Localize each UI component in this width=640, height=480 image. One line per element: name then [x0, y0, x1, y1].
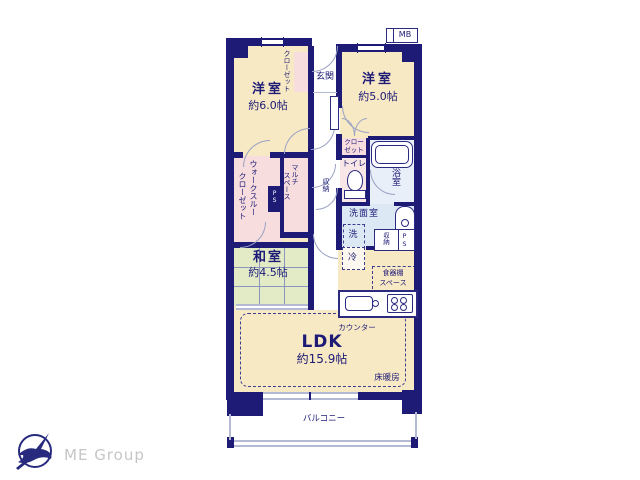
washer-label: 洗 [343, 230, 363, 240]
window-top-left-tick-b [283, 37, 284, 47]
wtc-label-line1: ウォークスルー [249, 160, 257, 216]
wall-left-outer [226, 38, 234, 398]
balcony-side-right [415, 412, 417, 439]
washbasin-faucet [401, 219, 409, 227]
entrance-step-line [313, 92, 337, 93]
japanese-size: 約4.5帖 [242, 267, 294, 280]
window-top-right [358, 46, 384, 50]
kitchen-sink-icon [345, 296, 373, 311]
logo-bird-icon [14, 424, 62, 472]
cupboard-label-line2: スペース [372, 279, 414, 287]
wall-corner-tl [226, 38, 248, 58]
kitchen-faucet-icon [372, 300, 379, 307]
wall-japanese-top [226, 242, 310, 248]
wall-western1-bottom-a [234, 152, 243, 158]
storage-wash-label: 収納 [382, 232, 389, 245]
fridge-label: 冷 [342, 253, 363, 263]
balcony-railing [228, 440, 418, 447]
window-top-left [262, 40, 283, 44]
ps-wash-label: PS [401, 232, 408, 248]
stove-icon [387, 294, 413, 313]
bathtub-inner [375, 145, 409, 164]
closet-top-floor [294, 52, 308, 92]
wall-multi-bottom [280, 232, 308, 238]
multi-label-line2: スペース [283, 172, 290, 200]
bathtub-icon [371, 141, 413, 168]
window-top-left-tick-a [261, 37, 262, 47]
pillar-bottom-right [402, 390, 422, 414]
japanese-sliding-door [236, 304, 308, 310]
floorplan-canvas: MB 玄関 洋室 約6.0帖 洋室 約5.0帖 クローゼット ウォークスルー ク… [0, 0, 640, 480]
balcony-label: バルコニー [296, 415, 352, 425]
logo: ME Group [14, 424, 144, 472]
shoe-cabinet [330, 96, 339, 130]
tatami-grid-h2 [234, 286, 310, 287]
wtc-label-line2: クローゼット [238, 172, 246, 220]
window-top-right-tick-a [357, 43, 358, 53]
storage-hall-label: 収納 [322, 178, 329, 192]
entrance-label: 玄関 [312, 72, 338, 82]
logo-text: ME Group [64, 446, 145, 464]
kitchen-counter [338, 290, 418, 318]
ldk-name: LDK [296, 333, 348, 353]
floor-heating-label: 床暖房 [370, 374, 404, 384]
toilet-label: トイレ [340, 159, 368, 168]
ps-small-label: PS [271, 190, 277, 204]
multi-label-line1: マルチ [291, 164, 298, 185]
balcony-side-left [229, 414, 231, 440]
wall-closet2-toilet [342, 155, 366, 158]
window-bottom-tick [309, 392, 311, 400]
western2-name: 洋室 [354, 73, 402, 88]
wall-western2-bottom-b [368, 136, 422, 140]
toilet-tank-icon [344, 190, 366, 199]
cupboard-label-line1: 食器棚 [374, 269, 412, 277]
pillar-bottom-left [227, 392, 263, 416]
bath-label: 浴室 [390, 168, 399, 186]
toilet-icon [347, 170, 363, 191]
western2-size: 約5.0帖 [350, 91, 406, 104]
wall-washroom-top-a [336, 202, 370, 206]
window-top-right-tick-b [385, 43, 386, 53]
western1-size: 約6.0帖 [240, 100, 296, 113]
mb-label: MB [394, 30, 416, 39]
closet2-label-line2: ゼット [341, 147, 367, 154]
japanese-name: 和室 [246, 251, 290, 266]
wall-right-outer [414, 44, 422, 398]
ldk-size: 約15.9帖 [290, 353, 354, 367]
washroom-label: 洗面室 [345, 209, 383, 219]
closet-top-label: クローゼット [283, 50, 290, 92]
